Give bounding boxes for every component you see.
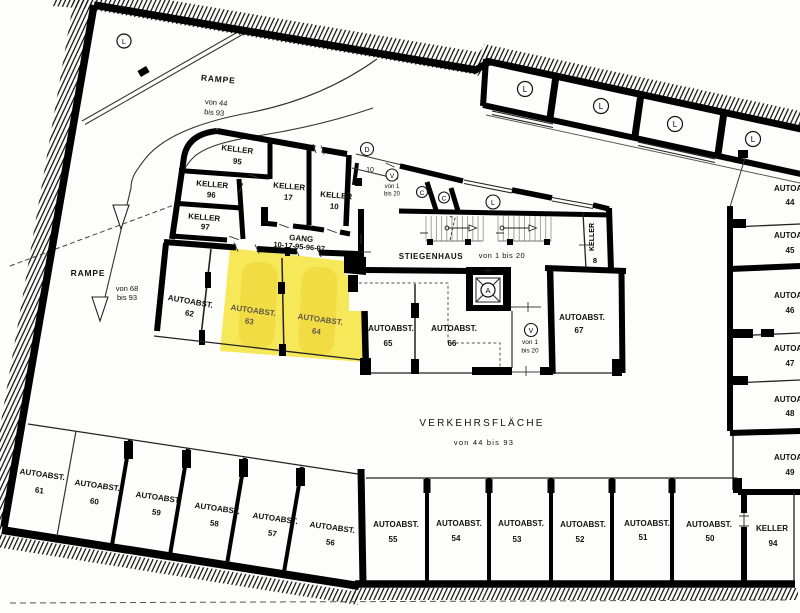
svg-text:von 1 bis 20: von 1 bis 20 (479, 251, 525, 260)
svg-text:C: C (420, 190, 425, 197)
svg-text:10: 10 (366, 167, 374, 174)
svg-text:L: L (491, 200, 495, 207)
svg-text:AUTOABST.: AUTOABST. (624, 519, 670, 528)
svg-text:L: L (523, 85, 528, 94)
svg-text:97: 97 (200, 222, 210, 232)
svg-text:45: 45 (786, 246, 795, 255)
svg-text:bis 20: bis 20 (521, 348, 539, 355)
svg-text:65: 65 (384, 339, 393, 348)
svg-text:D: D (364, 147, 369, 154)
svg-text:AUTOABST.: AUTOABST. (774, 344, 800, 353)
svg-text:KELLER: KELLER (756, 524, 788, 533)
svg-text:54: 54 (452, 534, 461, 543)
svg-text:46: 46 (786, 306, 795, 315)
svg-text:STIEGENHAUS: STIEGENHAUS (399, 252, 463, 261)
svg-text:59: 59 (151, 507, 162, 517)
svg-text:bis 20: bis 20 (384, 192, 401, 198)
svg-text:67: 67 (575, 326, 584, 335)
svg-text:96: 96 (206, 190, 216, 200)
svg-text:AUTOABST.: AUTOABST. (373, 520, 419, 529)
svg-text:L: L (673, 120, 678, 129)
svg-text:RAMPE: RAMPE (71, 268, 106, 278)
svg-text:L: L (122, 37, 126, 46)
svg-text:von 1: von 1 (385, 184, 400, 190)
svg-text:AUTOABST.: AUTOABST. (498, 519, 544, 528)
svg-text:von 44 bis 93: von 44 bis 93 (454, 438, 514, 447)
svg-text:51: 51 (639, 533, 648, 542)
svg-text:KELLER: KELLER (589, 223, 596, 251)
svg-text:52: 52 (576, 535, 585, 544)
svg-text:AUTOABST.: AUTOABST. (774, 231, 800, 240)
svg-text:AUTOABST.: AUTOABST. (431, 324, 477, 333)
svg-text:AUTOABST.: AUTOABST. (436, 519, 482, 528)
svg-text:AUTOABST.: AUTOABST. (560, 520, 606, 529)
svg-text:50: 50 (706, 534, 715, 543)
svg-text:60: 60 (89, 496, 100, 506)
svg-text:48: 48 (786, 409, 795, 418)
svg-text:C: C (442, 196, 447, 203)
svg-text:AUTOABST.: AUTOABST. (774, 395, 800, 404)
svg-text:A: A (485, 286, 490, 295)
svg-text:53: 53 (513, 535, 522, 544)
svg-text:95: 95 (232, 157, 242, 167)
svg-text:von 68: von 68 (116, 284, 139, 293)
svg-text:L: L (599, 102, 604, 111)
svg-text:AUTOABST.: AUTOABST. (559, 313, 605, 322)
svg-text:17: 17 (283, 193, 293, 203)
svg-text:10: 10 (329, 202, 339, 212)
svg-text:56: 56 (325, 537, 336, 547)
svg-text:L: L (751, 135, 756, 144)
svg-text:61: 61 (34, 485, 45, 495)
svg-text:44: 44 (786, 198, 795, 207)
svg-text:bis 93: bis 93 (117, 293, 137, 302)
svg-text:AUTOABST.: AUTOABST. (774, 453, 800, 462)
svg-text:63: 63 (244, 316, 255, 326)
svg-text:55: 55 (389, 535, 398, 544)
svg-text:8: 8 (593, 256, 597, 265)
svg-text:66: 66 (448, 339, 457, 348)
svg-text:AUTOABST.: AUTOABST. (686, 520, 732, 529)
svg-text:49: 49 (786, 468, 795, 477)
svg-text:AUTOABST.: AUTOABST. (774, 184, 800, 193)
svg-text:von 1: von 1 (522, 339, 538, 346)
svg-text:AUTOABST.: AUTOABST. (774, 291, 800, 300)
svg-text:V: V (390, 173, 395, 180)
svg-text:V: V (529, 328, 534, 335)
svg-text:bis 93: bis 93 (204, 107, 225, 118)
svg-text:94: 94 (769, 539, 778, 548)
svg-text:VERKEHRSFLÄCHE: VERKEHRSFLÄCHE (419, 417, 544, 429)
svg-text:47: 47 (786, 359, 795, 368)
svg-text:58: 58 (209, 518, 220, 528)
svg-text:AUTOABST.: AUTOABST. (368, 324, 414, 333)
svg-text:57: 57 (267, 528, 278, 538)
svg-text:64: 64 (311, 326, 322, 336)
